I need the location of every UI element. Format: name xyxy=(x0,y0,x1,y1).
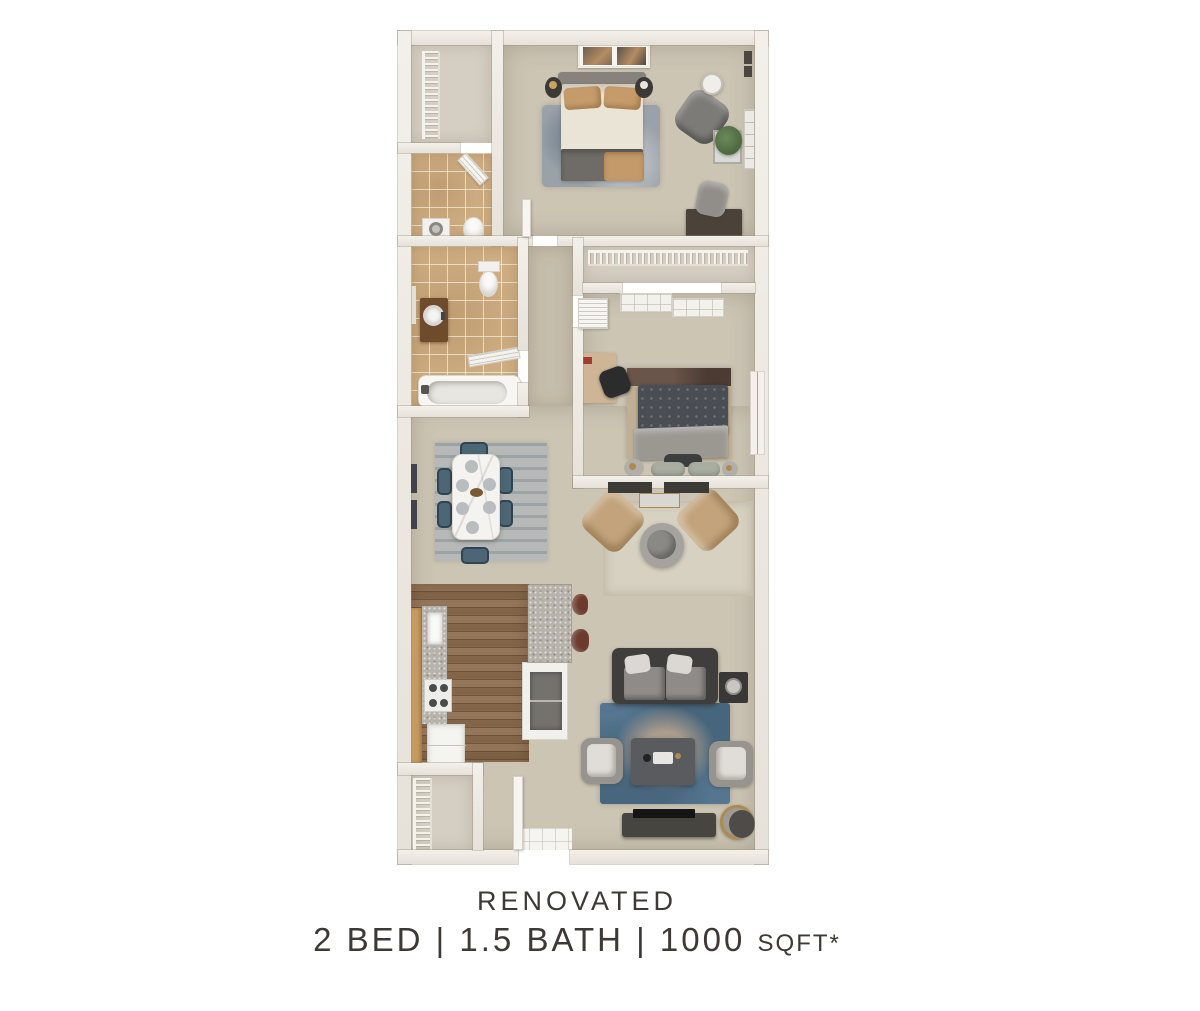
plant xyxy=(715,126,742,155)
wall xyxy=(722,283,755,293)
wall xyxy=(573,328,583,488)
plate xyxy=(483,501,496,514)
dining-chair xyxy=(437,501,452,528)
mirror-shade xyxy=(729,810,755,838)
kitchen-sink xyxy=(427,612,443,645)
nightstand-decor xyxy=(629,463,636,470)
wall-frame xyxy=(744,51,752,64)
kitchen-cabinets xyxy=(411,608,422,763)
plate xyxy=(456,502,469,515)
caption-title: RENOVATED xyxy=(212,884,942,918)
faucet xyxy=(441,312,445,320)
armchair xyxy=(581,738,623,784)
armchair-cushion xyxy=(716,747,746,780)
mirror-pane xyxy=(583,47,612,65)
nightstand-decor xyxy=(726,465,732,471)
bedroom-2-rug-band xyxy=(627,368,731,386)
wall xyxy=(398,31,768,45)
wall xyxy=(518,238,528,350)
coffee-table xyxy=(631,738,695,785)
dresser-mirror xyxy=(578,42,650,68)
wall-frame xyxy=(744,66,752,77)
fridge-door-seam xyxy=(428,745,466,746)
sofa-pillow xyxy=(666,653,693,674)
armchair-cushion xyxy=(587,744,616,777)
round-coffee-table xyxy=(640,523,684,567)
sofa xyxy=(612,648,718,704)
plate xyxy=(466,521,479,534)
dining-chair xyxy=(461,547,489,564)
wall xyxy=(398,763,483,775)
table-tray xyxy=(653,752,673,764)
wall-art xyxy=(411,500,417,529)
wall xyxy=(492,31,503,246)
bedroom-1-door xyxy=(522,199,531,237)
wall xyxy=(398,406,529,417)
bed-2-pillow xyxy=(651,462,685,477)
closet-shelving xyxy=(588,250,748,266)
mirror-pane xyxy=(617,47,646,65)
closet-shelving xyxy=(413,778,432,850)
console-table xyxy=(639,493,680,508)
washer-door xyxy=(429,222,443,236)
caption-specs-main: 2 BED | 1.5 BATH | 1000 xyxy=(313,921,745,958)
sofa-pillow xyxy=(624,653,651,674)
wall-art xyxy=(411,464,417,493)
bookshelf xyxy=(744,109,755,169)
table-decor xyxy=(643,754,651,762)
dining-chair xyxy=(498,467,513,494)
floor-plan xyxy=(398,31,768,864)
caption-specs: 2 BED | 1.5 BATH | 1000 SQFT* xyxy=(212,918,942,966)
entry-tile-floor xyxy=(516,828,572,850)
bar-stool xyxy=(572,594,588,615)
caption: RENOVATED 2 BED | 1.5 BATH | 1000 SQFT* xyxy=(212,884,942,966)
closet-shelving xyxy=(422,51,440,139)
burner xyxy=(429,699,437,707)
tv xyxy=(633,809,695,818)
bedroom-2-door xyxy=(578,298,608,329)
bathroom-mirror xyxy=(411,286,416,324)
plate xyxy=(465,460,478,473)
dining-chair xyxy=(498,500,513,527)
plate xyxy=(483,478,496,491)
wall xyxy=(398,850,518,864)
bed-1-throw xyxy=(604,152,644,181)
wall xyxy=(398,236,532,246)
armchair xyxy=(709,741,753,787)
bathtub-basin xyxy=(427,381,507,404)
closet-sliding-door xyxy=(672,298,724,317)
floor-plan-page: RENOVATED 2 BED | 1.5 BATH | 1000 SQFT* xyxy=(0,0,1200,1011)
wall-art xyxy=(608,482,652,493)
caption-specs-unit: SQFT* xyxy=(758,930,841,957)
wall xyxy=(570,850,768,864)
stove xyxy=(424,679,452,712)
bar-stool xyxy=(571,629,589,652)
floor-lamp xyxy=(701,73,723,95)
round-mirror xyxy=(720,805,754,839)
table-decor xyxy=(675,753,681,759)
wall xyxy=(583,283,622,293)
wall xyxy=(398,31,411,864)
nightstand-decor xyxy=(640,81,648,89)
plate xyxy=(456,479,469,492)
wall xyxy=(398,143,460,153)
dining-chair xyxy=(437,468,452,495)
side-table xyxy=(719,672,748,703)
washer xyxy=(422,218,450,238)
burner xyxy=(429,684,437,692)
bed-1-pillow xyxy=(563,86,601,111)
closet-sliding-door xyxy=(620,293,672,312)
shelf-divider xyxy=(530,700,562,702)
burner xyxy=(440,699,448,707)
desk-books xyxy=(582,357,592,364)
wall xyxy=(573,238,583,295)
island-shelves xyxy=(530,672,562,730)
hallway-floor xyxy=(528,246,573,408)
centerpiece xyxy=(470,488,483,497)
entry-door xyxy=(513,776,523,850)
dining-table xyxy=(452,454,500,540)
table-lamp xyxy=(549,81,557,89)
window xyxy=(750,371,765,455)
island-cabinet xyxy=(522,662,568,740)
wall-art xyxy=(664,482,709,493)
kitchen-island xyxy=(528,585,571,662)
wall xyxy=(473,763,483,850)
coffee-table-tier xyxy=(647,530,676,559)
burner xyxy=(440,684,448,692)
tub-faucet xyxy=(421,385,429,394)
wall xyxy=(558,236,768,246)
table-clock xyxy=(725,678,742,695)
bed-2-pillow xyxy=(688,462,720,477)
toilet xyxy=(479,271,498,297)
bathtub xyxy=(418,375,521,408)
